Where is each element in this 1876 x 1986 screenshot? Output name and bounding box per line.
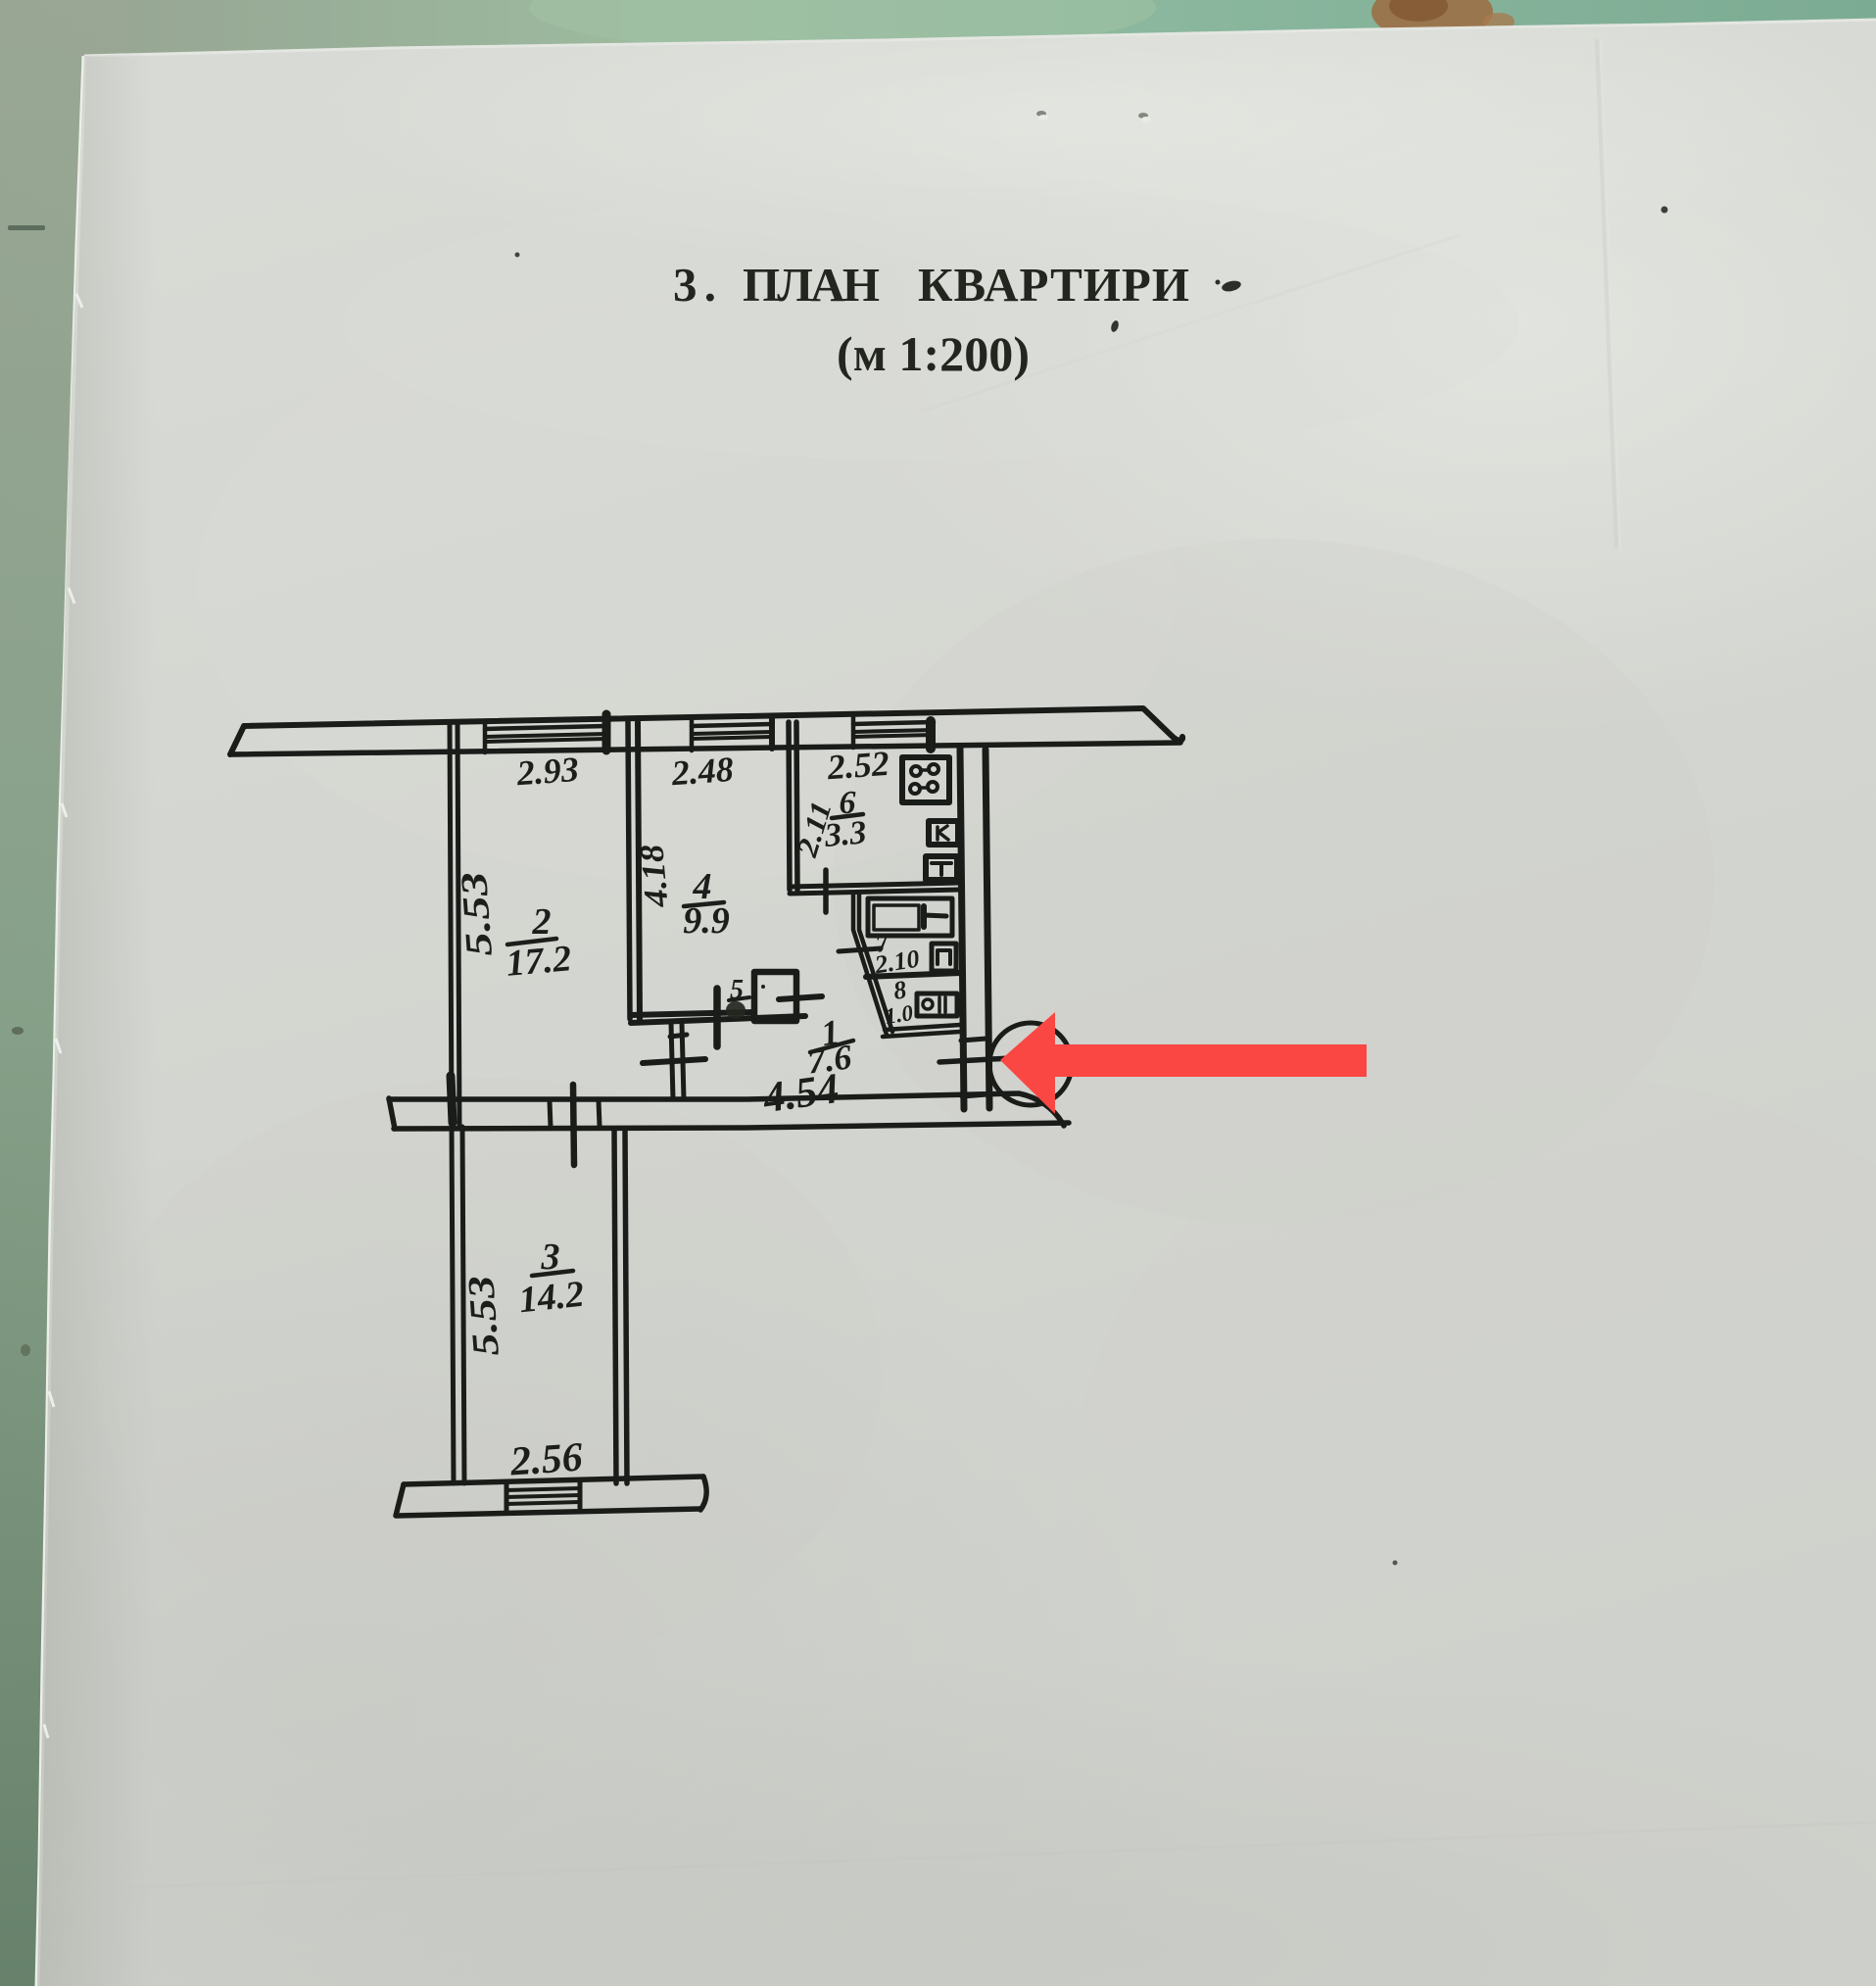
svg-text:3.: 3.: [673, 258, 716, 312]
svg-text:2.48: 2.48: [669, 750, 735, 793]
svg-text:5.53: 5.53: [460, 1275, 507, 1358]
svg-text:2.93: 2.93: [514, 750, 580, 793]
svg-text:5.53: 5.53: [454, 871, 501, 958]
svg-text:ПЛАН: ПЛАН: [743, 258, 880, 312]
svg-text:14.2: 14.2: [517, 1274, 587, 1322]
svg-text:2.52: 2.52: [825, 744, 890, 787]
svg-text:(м 1:200): (м 1:200): [837, 326, 1030, 381]
svg-text:4.18: 4.18: [634, 843, 676, 909]
svg-text:КВАРТИРИ: КВАРТИРИ: [918, 258, 1189, 312]
svg-text:3.3: 3.3: [822, 814, 868, 854]
svg-text:1.0: 1.0: [883, 1000, 915, 1029]
svg-text:2.56: 2.56: [508, 1434, 585, 1484]
svg-text:2: 2: [532, 901, 552, 943]
